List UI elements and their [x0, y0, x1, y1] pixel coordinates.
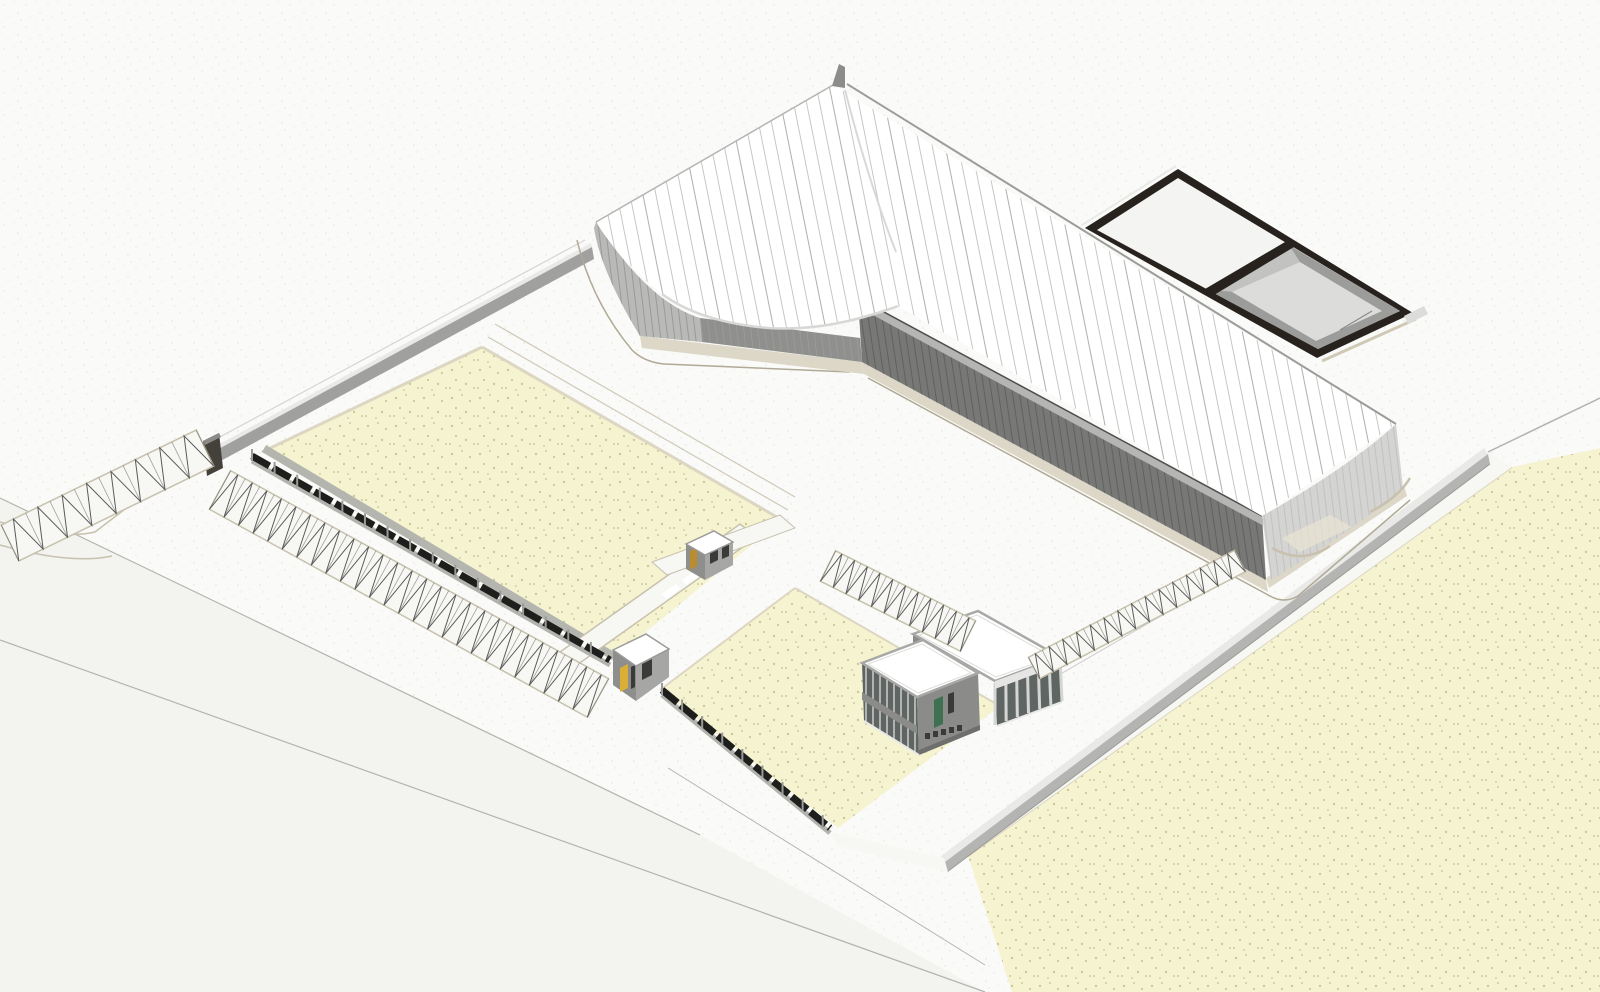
office-window-slit — [948, 692, 954, 714]
office-punch-window — [949, 727, 954, 733]
axonometric-site-view — [0, 0, 1600, 992]
office-punch-window — [933, 731, 938, 737]
office-punch-window — [925, 733, 930, 739]
office-column — [1028, 671, 1029, 713]
booth-door-yellow — [620, 664, 628, 692]
office-punch-window — [941, 729, 946, 735]
booth-window — [631, 665, 635, 689]
office-punch-window — [957, 725, 962, 731]
office-column — [1017, 675, 1018, 717]
site-model-canvas — [0, 0, 1600, 992]
office-door-green — [934, 696, 943, 728]
